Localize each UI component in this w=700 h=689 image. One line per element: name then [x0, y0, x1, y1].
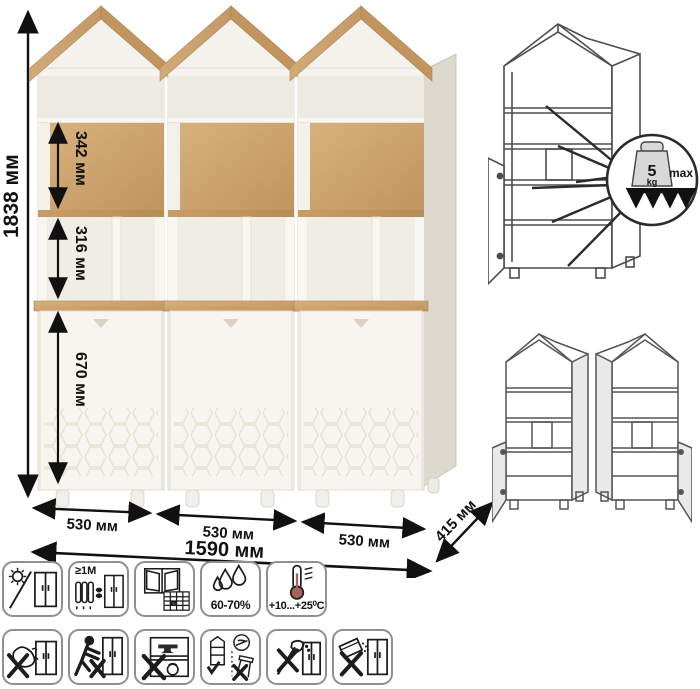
care-icons-row-2: [2, 629, 393, 685]
main-product-illustration: 1838 мм 342 мм 316 мм 670 мм 530 мм 530 …: [0, 0, 500, 578]
double-arrow-icon: [96, 588, 102, 598]
temperature-range-icon: +10...+25⁰C: [266, 561, 327, 617]
load-limit: max: [669, 166, 693, 180]
prohibit-x-icon: [341, 653, 360, 674]
house-unit-left: [30, 6, 172, 507]
no-wet-cleaning-icon: [2, 629, 63, 685]
no-heavy-objects-icon: [134, 629, 195, 685]
dimension-depth: 415 мм: [432, 496, 492, 561]
product-sheet: 1838 мм 342 мм 316 мм 670 мм 530 мм 530 …: [0, 0, 700, 689]
width-total-label: 1590 мм: [184, 537, 265, 563]
avoid-direct-sunlight-icon: [2, 561, 63, 617]
width-left-label: 530 мм: [66, 516, 118, 536]
kettlebell-icon: [167, 664, 178, 675]
humidity-range-icon: 60-70%: [200, 561, 261, 617]
height-total-label: 1838 мм: [0, 154, 23, 238]
dimension-width-left: 530 мм: [34, 508, 150, 535]
depth-label: 415 мм: [432, 496, 480, 545]
width-right-label: 530 мм: [338, 531, 390, 552]
no-spilling-icon: [332, 629, 393, 685]
ventilate-room-icon: [134, 561, 195, 617]
check-icon: [207, 662, 219, 673]
cabinet-glyph: [367, 640, 386, 675]
cabinet-glyph: [104, 576, 122, 608]
max-load-callout: 5 kg max: [607, 135, 697, 225]
level-surface-only-icon: [200, 629, 261, 685]
keep-1m-from-heat-icon: ≥1M: [68, 561, 129, 617]
house-unit-center: [160, 6, 302, 507]
no-sharp-tools-icon: [266, 629, 327, 685]
section-middle-label: 316 мм: [72, 226, 89, 281]
care-icons-row-1: ≥1M: [2, 561, 327, 617]
water-drops-icon: [213, 566, 245, 591]
upright-cabinet-icon: [210, 637, 224, 665]
thermometer-icon: [290, 566, 312, 599]
house-unit-right: [290, 6, 432, 507]
prohibit-x-icon: [8, 655, 26, 676]
distance-label: ≥1M: [75, 565, 96, 577]
open-window-icon: [144, 569, 179, 593]
temperature-label: +10...+25⁰C: [268, 599, 325, 612]
prohibit-x-icon: [91, 661, 104, 676]
prohibit-x-icon: [233, 666, 246, 680]
cabinet-glyph: [102, 638, 121, 675]
sun-icon: [8, 568, 55, 609]
level-detail-icon: [233, 635, 248, 650]
load-unit: kg: [647, 177, 658, 187]
cabinet-side-panel: [424, 54, 456, 486]
section-top-label: 342 мм: [72, 131, 89, 186]
prohibit-x-icon: [278, 650, 296, 670]
dimension-height-total: 1838 мм: [0, 12, 28, 496]
radiator-icon: [75, 582, 92, 609]
calendar-icon: [164, 592, 189, 610]
cabinet-glyph: [34, 573, 55, 607]
cabinet-glyph: [35, 642, 55, 675]
section-door-label: 670 мм: [72, 352, 89, 407]
dimension-width-right: 530 мм: [303, 522, 424, 552]
structure-diagram: 5 kg max: [488, 16, 700, 314]
humidity-label: 60-70%: [202, 598, 259, 612]
do-not-push-icon: [68, 629, 129, 685]
orientation-diagram: [492, 324, 692, 546]
anvil-icon: [158, 644, 177, 653]
